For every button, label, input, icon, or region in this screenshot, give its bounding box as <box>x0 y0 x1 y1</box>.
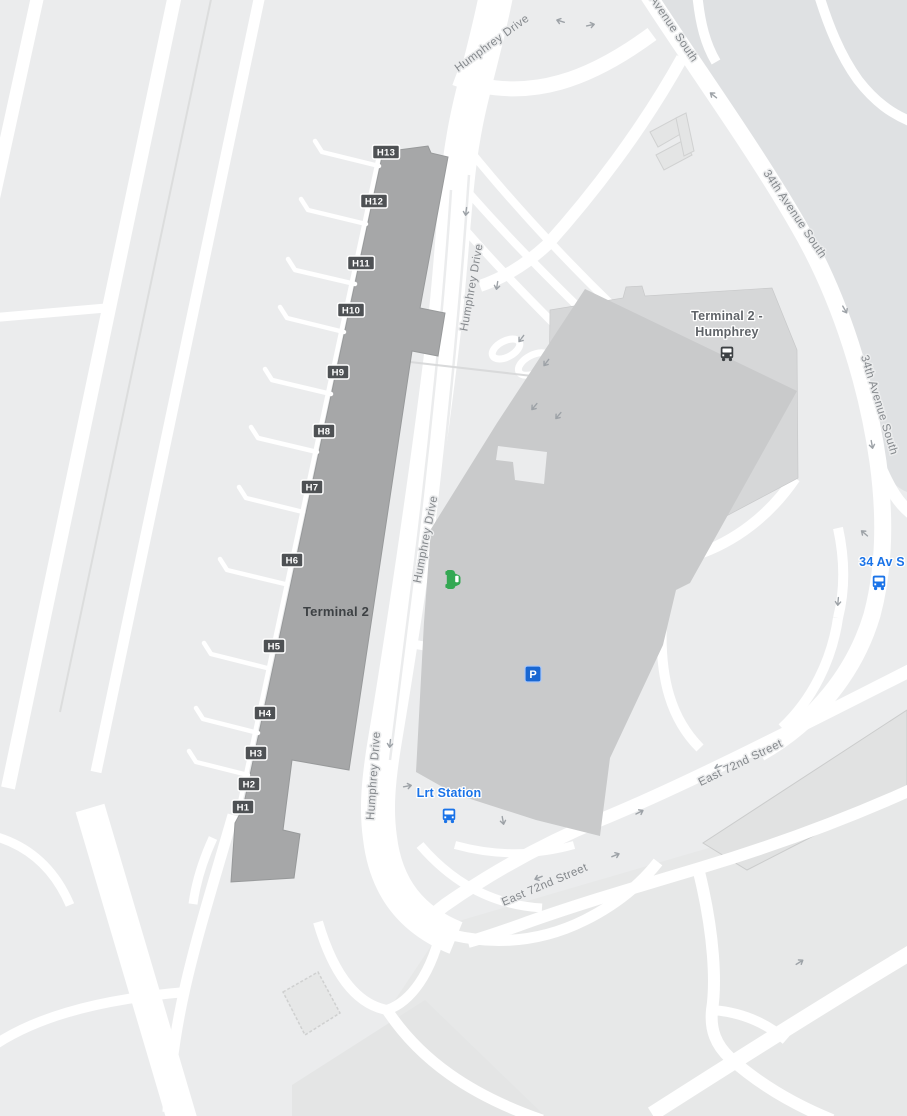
airport-map[interactable]: Humphrey Drive Humphrey Drive Humphrey D… <box>0 0 907 1116</box>
parking-icon-letter: P <box>529 669 536 681</box>
svg-text:H10: H10 <box>342 306 360 317</box>
svg-text:H11: H11 <box>352 259 370 270</box>
svg-text:H7: H7 <box>306 483 319 494</box>
gate-badge-h10: H10 <box>338 303 365 317</box>
svg-text:H3: H3 <box>250 749 263 760</box>
svg-text:H1: H1 <box>237 803 250 814</box>
terminal2-humphrey-stop-label-line2: Humphrey <box>695 325 758 339</box>
svg-text:H8: H8 <box>318 427 331 438</box>
svg-text:H6: H6 <box>286 556 299 567</box>
parking-icon[interactable]: P <box>525 666 541 682</box>
svg-text:H9: H9 <box>332 368 345 379</box>
svg-text:H12: H12 <box>365 197 383 208</box>
gate-badge-h11: H11 <box>348 256 375 270</box>
gate-badge-h12: H12 <box>361 194 388 208</box>
gate-badge-h2: H2 <box>238 777 260 791</box>
gate-badge-h5: H5 <box>263 639 285 653</box>
gate-badge-h6: H6 <box>281 553 303 567</box>
svg-text:H2: H2 <box>243 780 256 791</box>
gate-badge-h13: H13 <box>373 145 400 159</box>
terminal-2-label: Terminal 2 <box>303 604 369 619</box>
lrt-station-stop-label: Lrt Station <box>417 786 482 800</box>
svg-text:H5: H5 <box>268 642 281 653</box>
svg-text:H4: H4 <box>259 709 272 720</box>
svg-text:H13: H13 <box>377 148 395 159</box>
gate-badge-h1: H1 <box>232 800 254 814</box>
34-av-s-stop-label: 34 Av S <box>859 555 905 569</box>
gate-badge-h3: H3 <box>245 746 267 760</box>
terminal2-humphrey-stop-label-line1: Terminal 2 - <box>691 309 763 323</box>
gate-badge-h7: H7 <box>301 480 323 494</box>
gate-badge-h4: H4 <box>254 706 276 720</box>
gate-badge-h9: H9 <box>327 365 349 379</box>
gate-badge-h8: H8 <box>313 424 335 438</box>
